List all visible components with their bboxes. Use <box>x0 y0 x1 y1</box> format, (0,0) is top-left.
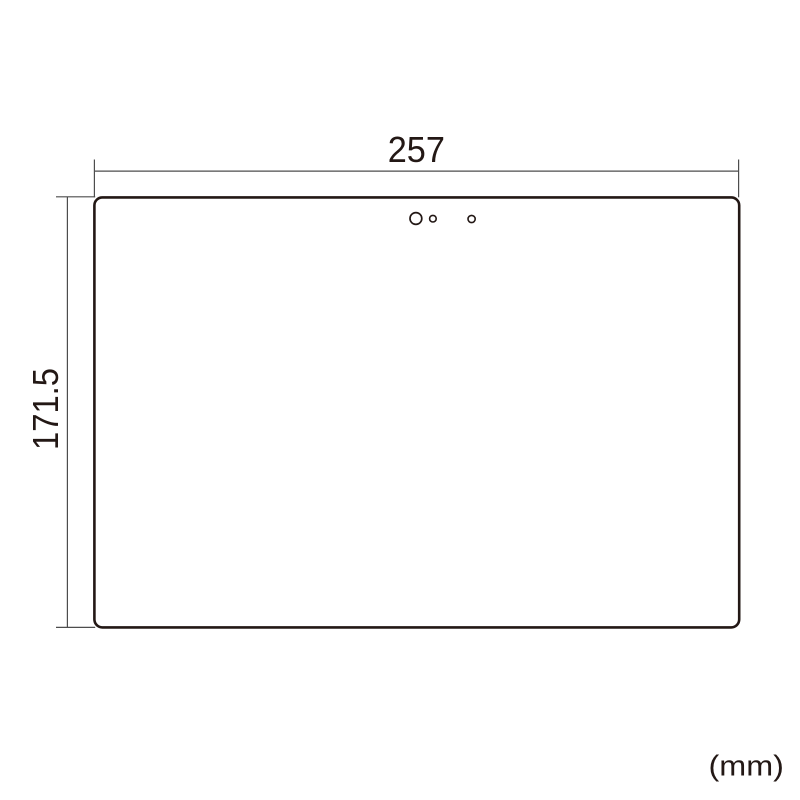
svg-text:171.5: 171.5 <box>25 368 66 450</box>
svg-text:(mm): (mm) <box>709 751 784 783</box>
svg-text:257: 257 <box>388 129 445 170</box>
